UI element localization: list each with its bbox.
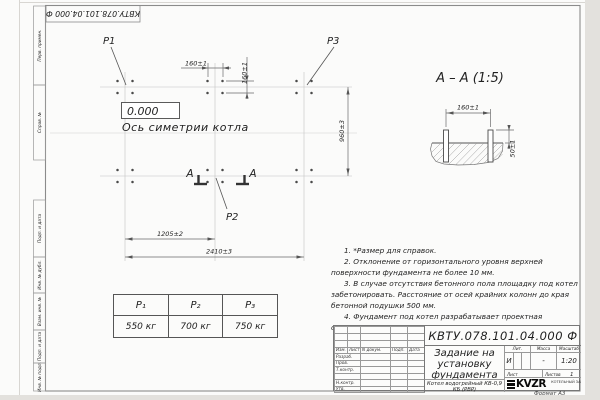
load-point-p1-label: P1 [103,36,115,47]
top-designation-box: КВТУ.078.101.04.000 Ф [46,6,140,23]
sheets-total-cell: Листов 1 [542,370,581,378]
scan-margin [585,0,600,400]
logo-cell: KVZR КОТЕЛЬНЫЙ ЗАВОД РЭП [504,378,581,392]
dim-section-160-label: 160±1 [457,104,479,112]
mass-value: - [530,353,556,370]
loads-value-p1: 550 кг [114,316,169,338]
loads-table-header-row: P₁ P₂ P₃ [114,295,278,316]
revision-row [335,341,425,348]
scale-value: 1:20 [556,353,581,370]
loads-value-p2: 700 кг [168,316,223,338]
sheet-number-cell: Лист [504,370,542,378]
title-block: Изм. Лист N докум. Подп. Дата Разраб. Пр… [333,325,580,391]
lit-cell-3 [521,353,530,370]
kvzr-logo-caption: КОТЕЛЬНЫЙ ЗАВОД РЭП [551,380,577,385]
strip-label: Подп. и дата [37,214,43,244]
dim-2410-label: 2410±3 [206,248,232,256]
mass-header: Масса [530,346,556,353]
loads-header-p2: P₂ [168,295,223,316]
elevation-marker: 0.000 [122,103,180,119]
strip-label: Подп. и дата [37,332,43,362]
kvzr-logo-text: KVZR [516,378,546,390]
frame-attribute-labels: Перв. примен. Справ. № Подп. и дата Инв.… [37,29,43,391]
top-designation-text: КВТУ.078.101.04.000 Ф [46,9,140,18]
section-letter-left: А [185,168,193,180]
document-title: Задание на установку фундамента [424,346,504,379]
loads-header-p3: P₃ [223,295,278,316]
note-1: 1. *Размер для справок. [331,246,579,257]
symmetry-axis-label: Ось симетрии котла [122,121,249,134]
row-utv: Утв. [335,386,361,393]
section-title: А – А (1:5) [435,71,504,86]
loads-table-value-row: 550 кг 700 кг 750 кг [114,316,278,338]
revision-row [335,327,425,334]
load-point-p2-label: P2 [226,212,238,223]
scale-header: Масштаб [556,346,581,353]
strip-label: Справ. № [37,112,43,133]
strip-label: Инв. № подл. [37,362,43,392]
anchor-bolts [444,130,494,162]
scan-margin [0,395,600,400]
signature-row: Утв. [335,386,425,393]
kvzr-logo-bars-icon [507,380,515,389]
strip-label: Инв. № дубл. [37,260,43,289]
section-letter-right: А [248,168,256,180]
dim-50-label: 50±1 [509,140,517,158]
dim-1205-label: 1205±2 [157,230,183,238]
drawing-sheet: Перв. примен. Справ. № Подп. и дата Инв.… [0,0,600,400]
strip-label: Перв. примен. [37,29,43,61]
plan-view: P1 P3 P2 0.000 Ось симетрии котла А А [50,36,357,261]
dim-160v-label: 160±1 [241,62,249,84]
lit-value: И [504,353,513,370]
title-block-signature-table: Изм. Лист N докум. Подп. Дата Разраб. Пр… [334,326,425,393]
section-view: А – А (1:5) [431,71,517,165]
revision-row [335,334,425,341]
notes-block: 1. *Размер для справок. 2. Отклонение от… [331,246,579,334]
lit-cell-2 [513,353,521,370]
dim-160h-label: 160±1 [185,60,207,68]
loads-header-p1: P₁ [114,295,169,316]
lit-header: Лит. [504,346,530,353]
dim-960-label: 960±3 [338,120,346,142]
loads-table: P₁ P₂ P₃ 550 кг 700 кг 750 кг [113,294,278,338]
elevation-value: 0.000 [127,105,159,118]
product-name: Котел водогрейный КВ-0,9 КБ (РВР) [424,379,504,392]
sheets-label: Листов [545,372,561,377]
note-2: 2. Отклонение от горизонтального уровня … [331,257,579,279]
document-designation: КВТУ.078.101.04.000 Ф [424,326,581,346]
loads-value-p3: 750 кг [223,316,278,338]
load-point-p3-label: P3 [327,36,339,47]
sheets-value: 1 [570,372,574,378]
note-3: 3. В случае отсутствия бетонного пола пл… [331,279,579,312]
strip-label: Взам. инв. № [37,296,43,326]
